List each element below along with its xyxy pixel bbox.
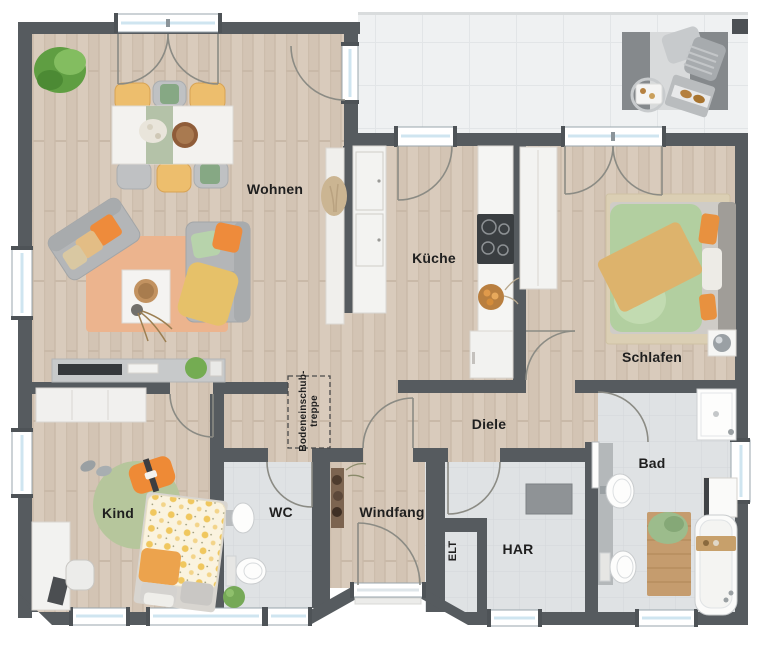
wall-wohnen-sued-b	[213, 382, 288, 394]
wc-cistern	[226, 556, 236, 586]
cabinet-handle-1	[377, 179, 380, 182]
dining-chair-4	[117, 162, 151, 189]
desk-chair	[66, 560, 94, 590]
tray-bottle-2	[713, 540, 719, 546]
table-bowl-inner	[176, 126, 194, 144]
window-kind-bottom-1	[69, 607, 130, 626]
terrace-door-wohnen	[341, 42, 359, 104]
wall-north-b	[455, 133, 565, 146]
floor-plan-drawing	[0, 0, 775, 648]
sofa-2	[175, 222, 250, 329]
terrace-edge	[358, 12, 748, 15]
cabinet-handle-2	[377, 238, 380, 241]
wall-diele-sued-d	[500, 448, 585, 462]
coat-1	[332, 475, 342, 485]
wall-right-a	[735, 133, 748, 442]
terrace-corner-post	[732, 19, 748, 34]
coat-3	[332, 507, 342, 517]
wall-elt-har	[477, 518, 487, 612]
lower-cabinet-handle	[472, 352, 475, 364]
kitchen-tall-cabinet	[353, 146, 386, 313]
har-unit	[526, 484, 572, 514]
pillow-orange-2	[699, 293, 718, 321]
wall-windfang-elt	[426, 462, 445, 612]
cooktop	[477, 214, 514, 264]
flower-2	[155, 133, 161, 139]
console-table	[326, 148, 344, 324]
window-har-bottom	[487, 609, 542, 627]
bad-towel-fold	[664, 516, 684, 532]
terrace-furniture	[622, 25, 728, 118]
fruit-bowl	[478, 284, 504, 310]
wall-wc-windfang	[312, 462, 330, 608]
tv	[58, 364, 122, 375]
fruit-3	[487, 299, 494, 306]
bathtub-inner	[700, 520, 732, 608]
french-door-schlafen	[561, 126, 666, 147]
coffee-table-tray-inner	[138, 283, 154, 299]
tub-tap-1	[724, 598, 729, 603]
wc-plant-leaf	[226, 589, 234, 597]
pillow-white	[702, 248, 722, 290]
wall-north-a	[344, 133, 398, 146]
coffee-table-vase	[131, 304, 143, 316]
fruit-1	[484, 290, 491, 297]
shower-tap	[728, 429, 734, 435]
wall-diele-sued-c	[413, 448, 448, 462]
terrace-food-1	[640, 88, 646, 94]
table-flowers	[139, 119, 167, 143]
tub-tap-2	[729, 591, 734, 596]
bookend	[210, 361, 222, 376]
wall-diele-sued-b	[312, 448, 363, 462]
dining-chair-2-cushion	[160, 84, 179, 104]
coat-2	[333, 491, 343, 501]
plant-wohnen-leaf	[54, 49, 86, 75]
terrace-food-2	[649, 93, 655, 99]
shower-drain	[713, 411, 719, 417]
entrance-door	[350, 582, 426, 604]
bad-cistern	[600, 553, 610, 581]
windfang-floor	[330, 462, 425, 588]
dining-chair-6-cushion	[200, 164, 220, 184]
flower-1	[147, 124, 153, 130]
window-wc-bottom	[264, 607, 312, 626]
window-kind-left	[11, 428, 33, 498]
fruit-2	[492, 293, 499, 300]
window-wohnen-left	[11, 246, 33, 320]
lamp-highlight	[716, 337, 723, 344]
wardrobe-kind	[36, 388, 146, 422]
window-bad-bottom	[635, 609, 698, 627]
bad-cabinet-shadow	[704, 478, 709, 517]
plant-wohnen-leaf2	[37, 70, 63, 90]
terrace-tray	[636, 84, 662, 104]
wall-diele-sued-a	[224, 448, 268, 462]
nightstand-lamp	[713, 334, 731, 352]
wc-plant	[223, 586, 245, 608]
wc-sink	[232, 503, 254, 533]
sideboard-plant	[185, 357, 207, 379]
floor-plan: Wohnen Küche Schlafen Diele Kind WC Wind…	[0, 0, 775, 648]
dining-chair-5	[157, 163, 191, 192]
french-window-wohnen-top	[114, 13, 222, 33]
kitchen-lower-cabinet	[470, 331, 513, 378]
wall-kueche-sued	[398, 380, 526, 393]
tray-bottle-1	[703, 540, 709, 546]
books	[128, 364, 158, 373]
kind-bed	[133, 492, 228, 613]
terrace-door-kueche	[394, 126, 457, 147]
